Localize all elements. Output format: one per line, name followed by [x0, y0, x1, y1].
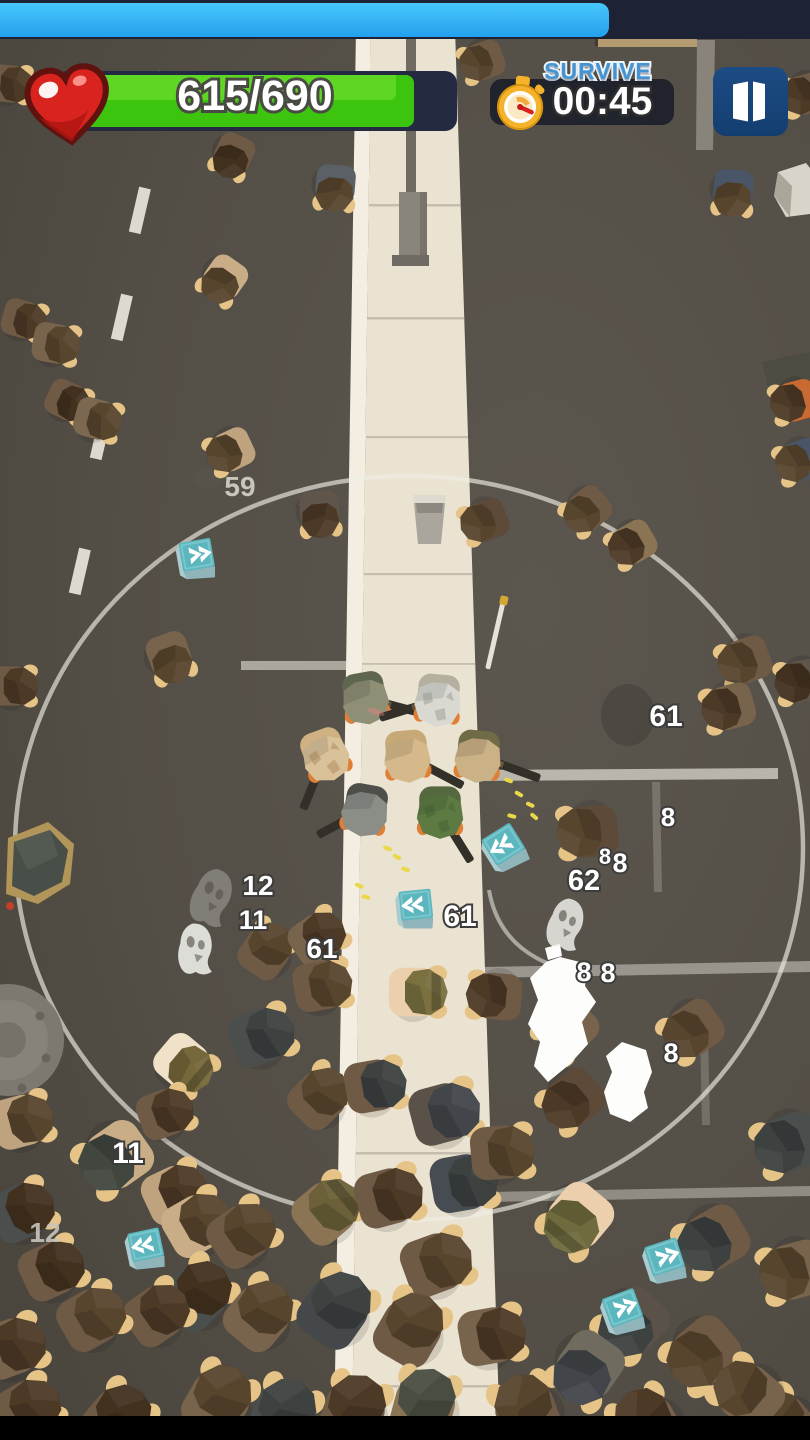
svg-text:61: 61	[649, 700, 682, 733]
svg-text:11: 11	[112, 1137, 144, 1170]
svg-text:8: 8	[576, 957, 591, 987]
svg-text:8: 8	[599, 844, 611, 869]
svg-text:62: 62	[568, 865, 600, 897]
svg-text:12: 12	[242, 870, 273, 901]
svg-text:61: 61	[306, 933, 337, 964]
svg-text:8: 8	[600, 958, 615, 988]
svg-text:59: 59	[224, 471, 255, 502]
svg-text:12: 12	[29, 1217, 60, 1248]
svg-text:8: 8	[612, 848, 627, 878]
svg-text:8: 8	[663, 1038, 678, 1068]
svg-text:8: 8	[661, 802, 675, 832]
svg-text:11: 11	[239, 905, 268, 935]
svg-text:61: 61	[443, 900, 476, 933]
